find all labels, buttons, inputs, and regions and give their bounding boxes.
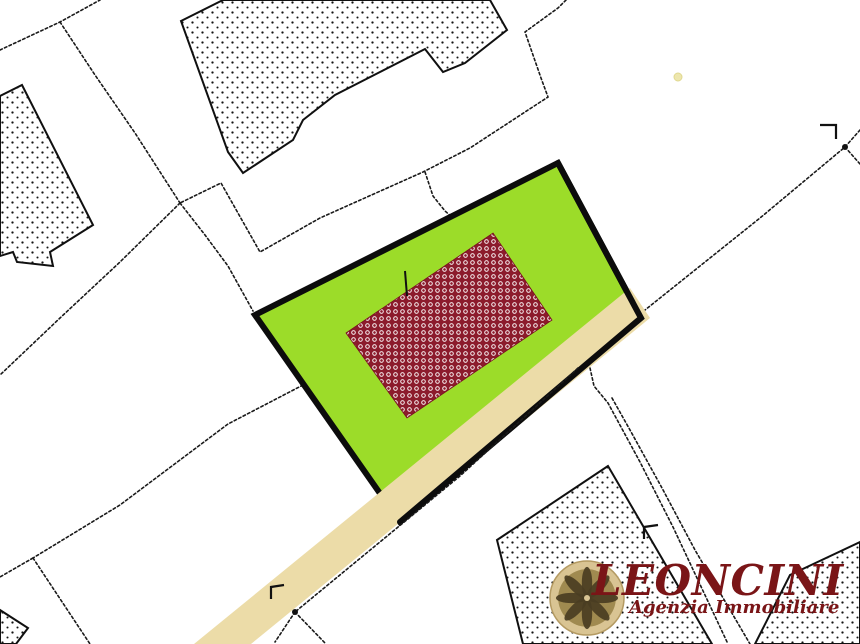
parcel-line-topleft-b bbox=[60, 22, 180, 203]
parcel-line-branch-to-green bbox=[425, 172, 452, 217]
logo-rosette-icon bbox=[550, 561, 624, 635]
hatched-building-bottom-left-corner bbox=[0, 610, 28, 644]
cadastral-map-page: LEONCINI Agenzia Immobiliare bbox=[0, 0, 860, 644]
parcel-line-lower-left-west bbox=[0, 558, 33, 577]
small-yellow-dot bbox=[674, 73, 682, 81]
hatched-building-left bbox=[0, 85, 93, 266]
junction-dot-road bbox=[292, 609, 298, 615]
corner-mark-top-right bbox=[820, 125, 836, 139]
rosette-center bbox=[584, 595, 590, 601]
parcel-line-topright-diagonal bbox=[645, 130, 860, 310]
cadastral-map-svg bbox=[0, 0, 860, 644]
hatched-building-corner-right bbox=[755, 542, 860, 644]
junction-dot-topright bbox=[842, 144, 848, 150]
parcel-line-lower-left bbox=[33, 385, 303, 558]
parcel-line-topright-stub bbox=[845, 147, 860, 164]
parcel-line-topleft-a bbox=[0, 0, 100, 50]
hatched-building-top bbox=[181, 0, 507, 173]
road-hidden-boundary-branch-right bbox=[295, 612, 325, 643]
parcel-line-lower-left-south bbox=[33, 558, 90, 644]
